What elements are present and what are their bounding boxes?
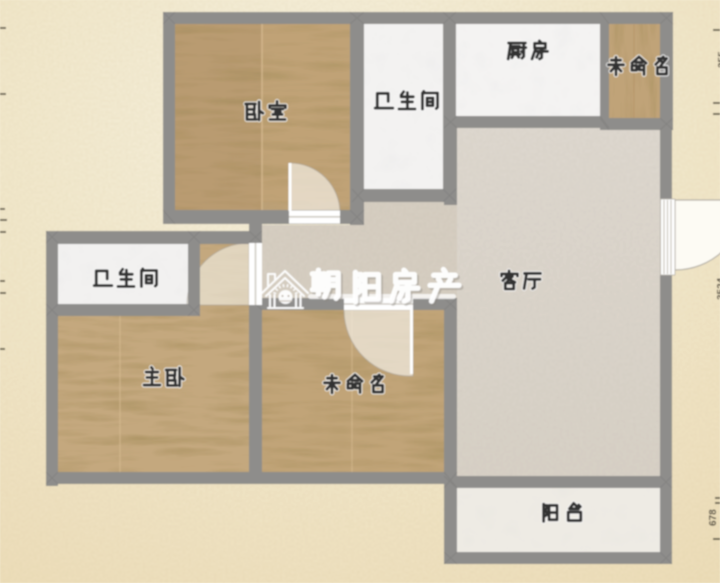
- svg-text:678: 678: [708, 509, 719, 526]
- svg-text:3524: 3524: [716, 277, 720, 300]
